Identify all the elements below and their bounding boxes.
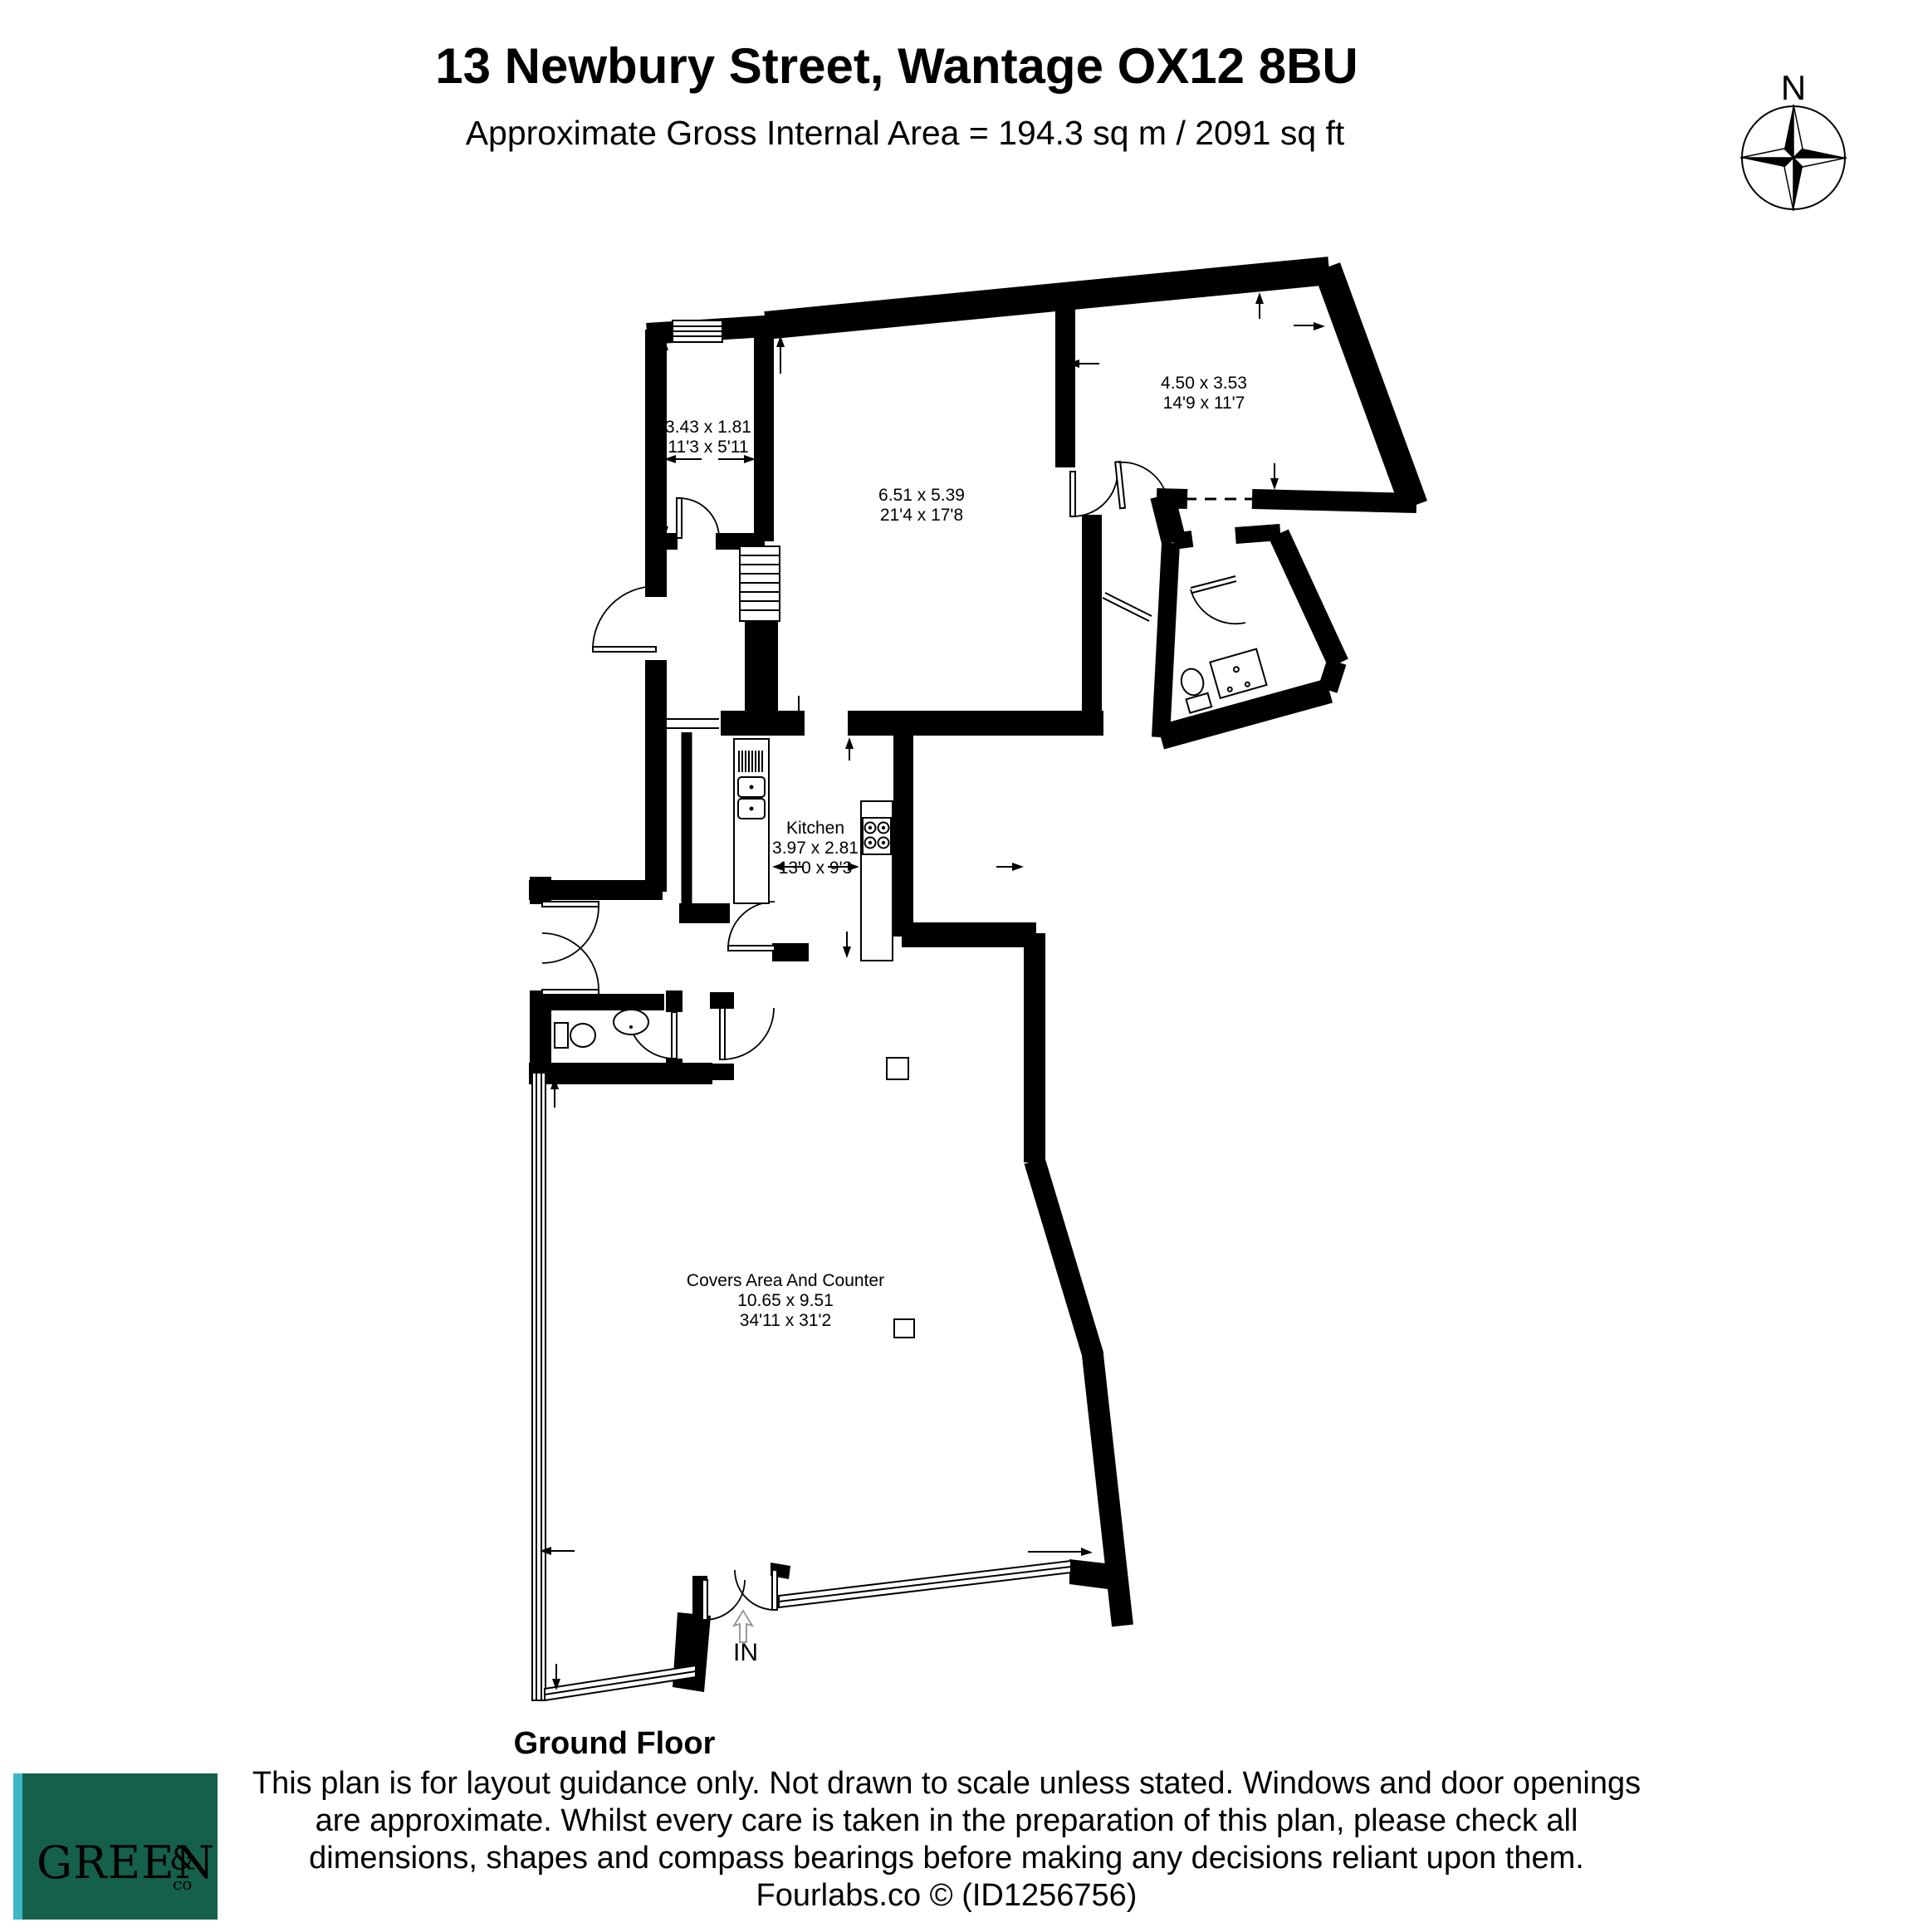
svg-text:6.51 x 5.39: 6.51 x 5.39 [878, 486, 965, 505]
window-bottom-right [779, 1561, 1071, 1607]
kitchen-sink-unit [734, 739, 769, 903]
svg-text:Covers Area And Counter: Covers Area And Counter [687, 1271, 884, 1290]
door-store-room [677, 498, 719, 538]
door-wc-right [1191, 576, 1245, 624]
door-main-entrance [702, 1570, 777, 1620]
window-end-block [1069, 1559, 1113, 1589]
svg-text:14'9 x 11'7: 14'9 x 11'7 [1163, 394, 1245, 413]
svg-text:11'3 x 5'11: 11'3 x 5'11 [668, 438, 748, 457]
window-top-left [673, 320, 722, 342]
compass-north-label: N [1781, 68, 1806, 107]
svg-text:21'4 x 17'8: 21'4 x 17'8 [880, 506, 963, 525]
column-lower [894, 1319, 914, 1338]
chimney-block [745, 619, 778, 716]
room-label-reception: 6.51 x 5.39 21'4 x 17'8 [878, 486, 965, 525]
page-subtitle: Approximate Gross Internal Area = 194.3 … [466, 114, 1345, 152]
room-label-store: 3.43 x 1.81 11'3 x 5'11 [665, 418, 751, 457]
disclaimer: This plan is for layout guidance only. N… [252, 1766, 1641, 1913]
svg-text:10.65 x 9.51: 10.65 x 9.51 [737, 1291, 834, 1310]
walls [529, 267, 1416, 1626]
compass-rose-icon: N [1740, 68, 1847, 211]
svg-text:dimensions, shapes and compass: dimensions, shapes and compass bearings … [309, 1841, 1584, 1876]
room-label-kitchen: Kitchen 3.97 x 2.81 13'0 x 9'3 [772, 819, 859, 878]
door-corridor-open-leaf [1103, 593, 1152, 621]
kitchen-hob-unit [861, 801, 893, 961]
floor-plan-page: 13 Newbury Street, Wantage OX12 8BU Appr… [0, 0, 1913, 1932]
svg-text:are approximate. Whilst every: are approximate. Whilst every care is ta… [316, 1803, 1578, 1838]
credit-line: Fourlabs.co © (ID1256756) [756, 1878, 1138, 1913]
svg-text:13'0 x 9'3: 13'0 x 9'3 [779, 858, 853, 878]
wc-right-vanity [1210, 649, 1266, 698]
entrance-arrow-icon [734, 1611, 752, 1642]
door-reception-corridor [1070, 472, 1118, 516]
opening-hall-lines [664, 719, 719, 728]
window-left-long [532, 1073, 546, 1700]
column-upper [887, 1058, 908, 1079]
floor-label: Ground Floor [514, 1726, 716, 1761]
room-label-covers: Covers Area And Counter 10.65 x 9.51 34'… [687, 1271, 884, 1330]
door-kitchen [728, 902, 775, 951]
entrance-label: IN [733, 1639, 758, 1666]
page-title: 13 Newbury Street, Wantage OX12 8BU [435, 38, 1358, 94]
wc-left-toilet [555, 1023, 595, 1048]
svg-text:34'11 x 31'2: 34'11 x 31'2 [740, 1311, 831, 1330]
room-label-top-right: 4.50 x 3.53 14'9 x 11'7 [1161, 374, 1247, 413]
logo-co: co [173, 1874, 192, 1894]
svg-text:3.43 x 1.81: 3.43 x 1.81 [665, 418, 751, 437]
doors [542, 462, 1245, 1620]
logo-amp: & [169, 1843, 196, 1877]
agency-logo: GREEN & co [13, 1773, 218, 1920]
stairs [740, 546, 780, 621]
wc-right-toilet [1178, 666, 1211, 712]
door-lobby-covers [720, 1008, 774, 1059]
door-lobby-double [542, 902, 599, 995]
svg-text:Kitchen: Kitchen [786, 819, 844, 838]
logo-teal-stripe [13, 1773, 22, 1920]
svg-text:3.97 x 2.81: 3.97 x 2.81 [772, 839, 859, 858]
svg-text:4.50 x 3.53: 4.50 x 3.53 [1161, 374, 1247, 393]
entrance-marker: IN [733, 1611, 758, 1666]
svg-text:This plan is for layout guidan: This plan is for layout guidance only. N… [252, 1766, 1641, 1801]
floor-plan-svg: 13 Newbury Street, Wantage OX12 8BU Appr… [0, 0, 1913, 1928]
